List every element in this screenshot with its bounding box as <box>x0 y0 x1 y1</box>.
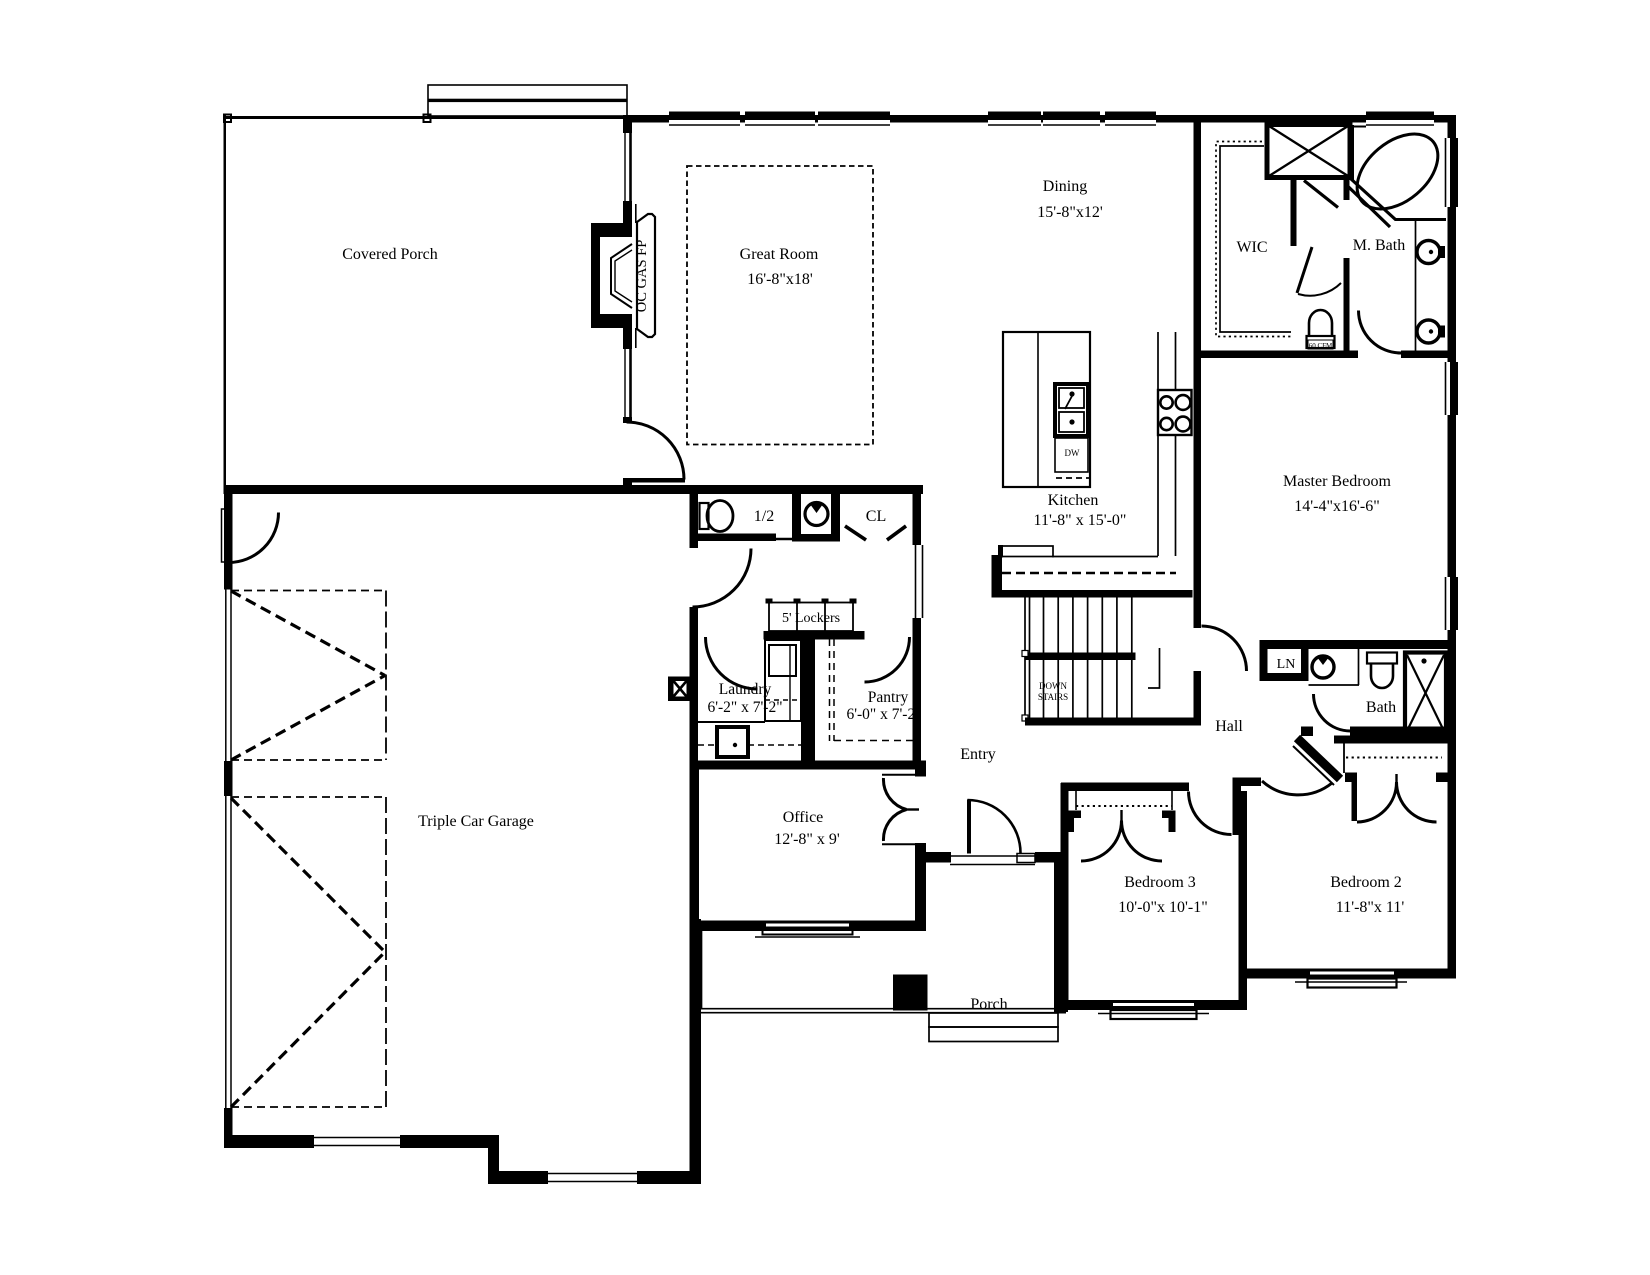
svg-text:16'-8"x18': 16'-8"x18' <box>747 271 813 288</box>
svg-text:5' Lockers: 5' Lockers <box>782 611 840 626</box>
svg-text:STAIRS: STAIRS <box>1038 692 1068 702</box>
svg-text:60 CFM: 60 CFM <box>1309 342 1333 350</box>
svg-text:1/2: 1/2 <box>754 508 774 525</box>
svg-text:Pantry: Pantry <box>868 689 909 706</box>
svg-text:Kitchen: Kitchen <box>1048 492 1099 509</box>
svg-text:M. Bath: M. Bath <box>1353 237 1405 254</box>
svg-text:Porch: Porch <box>970 996 1007 1013</box>
svg-text:6'-0" x 7'-2": 6'-0" x 7'-2" <box>846 706 921 723</box>
svg-text:11'-8"x 11': 11'-8"x 11' <box>1336 899 1405 916</box>
svg-text:DW: DW <box>1065 448 1080 458</box>
svg-text:Hall: Hall <box>1215 718 1243 735</box>
svg-text:Covered Porch: Covered Porch <box>342 246 438 263</box>
svg-text:CL: CL <box>866 508 886 525</box>
svg-text:Bedroom 3: Bedroom 3 <box>1124 874 1196 891</box>
svg-text:Master Bedroom: Master Bedroom <box>1283 473 1392 490</box>
svg-text:Triple Car Garage: Triple Car Garage <box>418 813 534 830</box>
svg-text:WIC: WIC <box>1236 239 1267 256</box>
svg-text:DOWN: DOWN <box>1039 681 1067 691</box>
svg-text:Office: Office <box>783 809 824 826</box>
svg-text:10'-0"x 10'-1": 10'-0"x 10'-1" <box>1118 899 1207 916</box>
svg-text:OC GAS FP: OC GAS FP <box>634 240 650 313</box>
svg-text:6'-2" x 7'-2": 6'-2" x 7'-2" <box>707 699 782 716</box>
svg-text:Laundry: Laundry <box>719 681 772 698</box>
svg-text:12'-8" x 9': 12'-8" x 9' <box>774 831 840 848</box>
svg-text:14'-4"x16'-6": 14'-4"x16'-6" <box>1294 498 1379 515</box>
svg-text:11'-8" x 15'-0": 11'-8" x 15'-0" <box>1034 512 1127 529</box>
svg-text:LN: LN <box>1277 657 1296 672</box>
svg-text:Dining: Dining <box>1043 178 1087 195</box>
svg-text:Bedroom 2: Bedroom 2 <box>1330 874 1402 891</box>
svg-text:Great Room: Great Room <box>740 246 819 263</box>
svg-text:15'-8"x12': 15'-8"x12' <box>1037 204 1103 221</box>
svg-text:Bath: Bath <box>1366 699 1396 716</box>
svg-text:Entry: Entry <box>960 746 996 763</box>
